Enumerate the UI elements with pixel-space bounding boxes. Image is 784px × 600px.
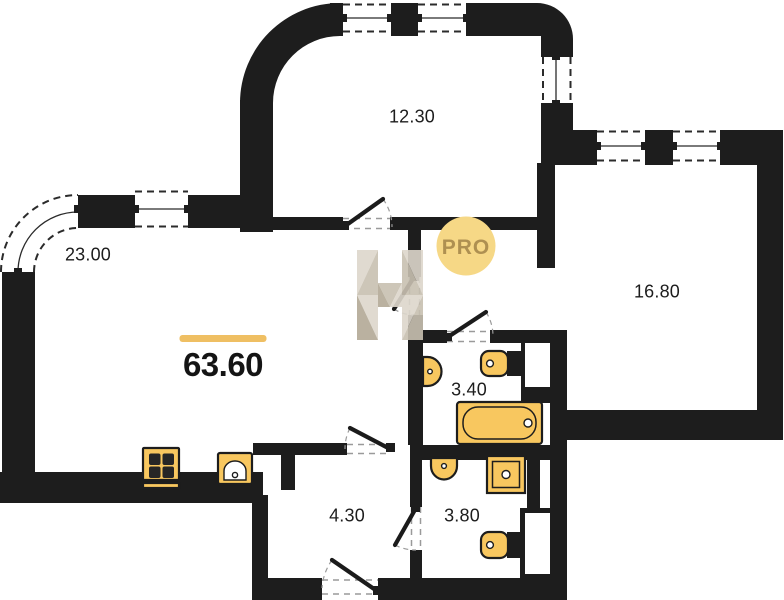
wc-area-label: 3.80 [444, 506, 480, 527]
washing-machine-icon [487, 456, 525, 493]
door-bedroom-living [342, 199, 392, 230]
wc-sink-icon [431, 458, 457, 480]
bathroom-area-label: 3.40 [451, 380, 487, 401]
h-logo-watermark [357, 250, 423, 340]
door-bathroom [444, 312, 493, 342]
total-area-underline [180, 335, 267, 342]
bathroom-sink-icon [423, 357, 442, 386]
floorplan: PRO 23.00 12.30 16.80 3.40 4.30 3.80 63.… [0, 0, 784, 600]
door-living-hallway [345, 428, 395, 454]
bathtub-icon [457, 402, 542, 444]
window-living-straight [131, 192, 192, 227]
pro-badge-label: PRO [442, 236, 491, 259]
total-area-value: 63.60 [180, 348, 267, 381]
door-hallway-wc [395, 504, 421, 550]
stove-icon [143, 448, 179, 488]
bedroom2-area-label: 16.80 [634, 282, 680, 303]
bathroom-toilet-icon [481, 351, 521, 376]
hallway-area-label: 4.30 [329, 506, 365, 527]
window-top-1 [340, 5, 394, 32]
bedroom-area-label: 12.30 [389, 107, 435, 128]
wc-toilet-icon [481, 532, 520, 558]
window-right-bedroom [543, 53, 571, 107]
window-bedroom2-2 [670, 132, 724, 161]
window-top-2 [415, 5, 470, 32]
kitchen-sink-icon [218, 453, 252, 484]
door-entrance [322, 560, 381, 595]
window-bedroom2-1 [594, 132, 648, 161]
living-room-area-label: 23.00 [65, 245, 111, 266]
total-area: 63.60 [180, 335, 267, 381]
pro-badge: PRO [437, 217, 496, 276]
